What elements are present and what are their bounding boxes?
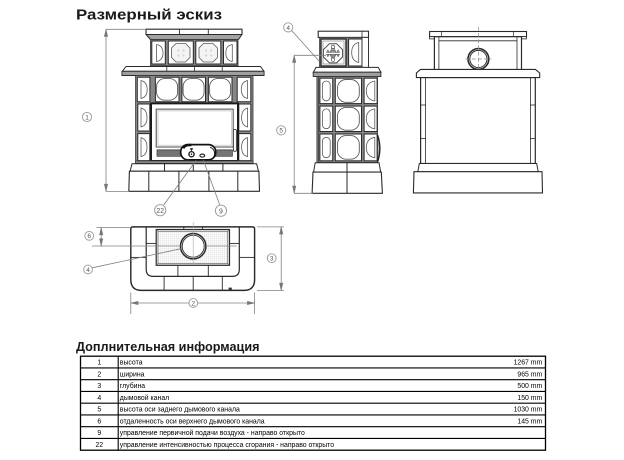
svg-text:Размерный эскиз: Размерный эскиз bbox=[76, 8, 222, 24]
svg-text:1267 mm: 1267 mm bbox=[514, 360, 543, 367]
svg-text:3: 3 bbox=[97, 383, 101, 390]
svg-text:9: 9 bbox=[219, 208, 223, 215]
svg-text:глубина: глубина bbox=[120, 382, 146, 390]
svg-text:1: 1 bbox=[97, 360, 101, 367]
svg-text:2: 2 bbox=[191, 300, 195, 307]
svg-text:5: 5 bbox=[97, 407, 101, 414]
svg-text:150 mm: 150 mm bbox=[517, 395, 542, 402]
svg-text:1030 mm: 1030 mm bbox=[514, 407, 543, 414]
svg-text:ширина: ширина bbox=[120, 371, 145, 378]
svg-text:дымовой канал: дымовой канал bbox=[120, 394, 169, 402]
svg-text:отдаленность оси верхнего дымо: отдаленность оси верхнего дымового канал… bbox=[120, 418, 265, 425]
svg-text:высота: высота bbox=[120, 360, 143, 367]
svg-text:22: 22 bbox=[95, 442, 103, 449]
svg-text:4: 4 bbox=[97, 395, 101, 402]
svg-text:управление интенсивностью проц: управление интенсивностью процесса сгора… bbox=[120, 442, 334, 449]
svg-text:Доплнительная информация: Доплнительная информация bbox=[76, 339, 260, 354]
svg-text:22: 22 bbox=[156, 208, 164, 215]
svg-text:965 mm: 965 mm bbox=[517, 371, 542, 378]
svg-text:500 mm: 500 mm bbox=[517, 383, 542, 390]
svg-text:4: 4 bbox=[86, 267, 90, 274]
svg-text:2: 2 bbox=[97, 371, 101, 378]
svg-text:5: 5 bbox=[279, 128, 283, 135]
svg-text:высота оси заднего дымового ка: высота оси заднего дымового канала bbox=[120, 407, 240, 414]
svg-text:управление первичной подачи во: управление первичной подачи воздуха - на… bbox=[120, 429, 305, 437]
svg-text:6: 6 bbox=[87, 233, 91, 240]
svg-text:1: 1 bbox=[85, 114, 89, 121]
svg-text:145 mm: 145 mm bbox=[517, 418, 542, 425]
svg-text:9: 9 bbox=[97, 430, 101, 437]
svg-text:6: 6 bbox=[97, 418, 101, 425]
svg-text:3: 3 bbox=[270, 256, 274, 263]
svg-text:4: 4 bbox=[286, 25, 290, 32]
